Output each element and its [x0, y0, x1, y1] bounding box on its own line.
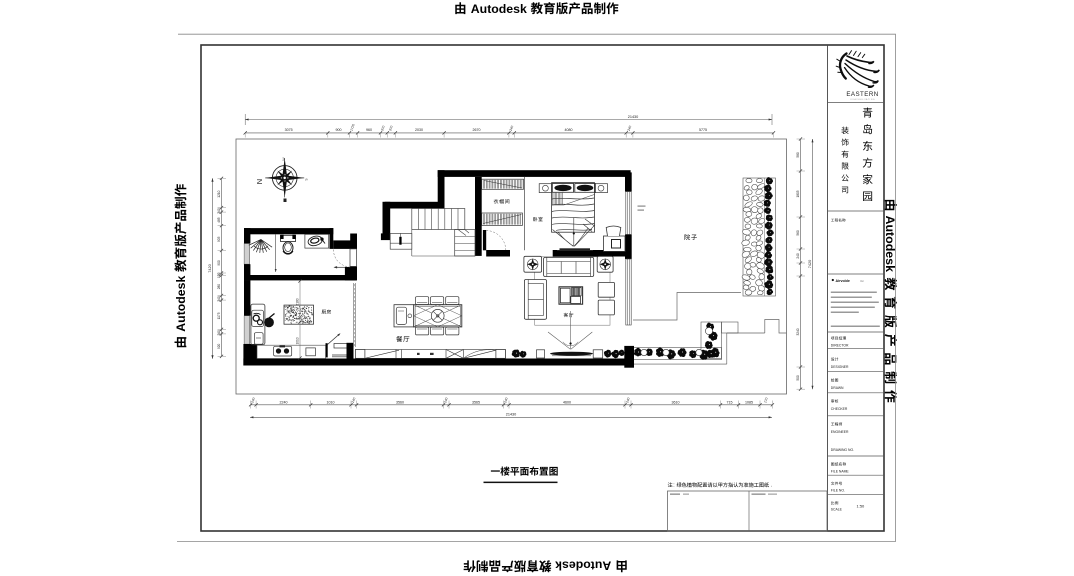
svg-text:21430: 21430: [506, 413, 517, 417]
svg-text:3565: 3565: [472, 400, 480, 404]
svg-text:S: S: [305, 178, 309, 180]
svg-text:FILE NO.: FILE NO.: [831, 488, 845, 492]
svg-text:Ver: Ver: [860, 279, 864, 283]
svg-text:240: 240: [217, 330, 221, 336]
svg-text:120: 120: [217, 272, 221, 278]
svg-text:DIRECTOR: DIRECTOR: [831, 344, 849, 348]
svg-text:DRAWN: DRAWN: [831, 386, 844, 390]
svg-text:Airvolde: Airvolde: [836, 279, 850, 283]
svg-text:240: 240: [796, 253, 800, 259]
svg-text:K U A I S H E J I A T I N G: K U A I S H E J I A T I N G: [850, 98, 874, 101]
svg-text:2670: 2670: [473, 128, 481, 132]
svg-text:21430: 21430: [628, 115, 639, 119]
svg-text:715: 715: [727, 400, 733, 404]
svg-text:EASTERN: EASTERN: [846, 91, 878, 98]
svg-text:240: 240: [217, 296, 221, 302]
svg-text:560: 560: [796, 230, 800, 236]
svg-text:2030: 2030: [415, 128, 423, 132]
svg-text:500: 500: [796, 375, 800, 381]
svg-text:3075: 3075: [285, 128, 293, 132]
svg-text:7420: 7420: [808, 260, 812, 268]
svg-text:7420: 7420: [208, 264, 212, 272]
svg-text:4080: 4080: [565, 128, 573, 132]
svg-text:3560: 3560: [396, 400, 404, 404]
svg-text:900: 900: [336, 128, 342, 132]
svg-text:1010: 1010: [295, 337, 299, 344]
svg-text:DESIGNER: DESIGNER: [831, 365, 849, 369]
svg-text:5775: 5775: [699, 128, 707, 132]
svg-text:920: 920: [217, 343, 221, 349]
svg-text:.: .: [771, 482, 772, 488]
svg-text:1010: 1010: [327, 400, 335, 404]
svg-text::: :: [673, 482, 674, 488]
svg-text:485: 485: [217, 217, 221, 223]
svg-text:4600: 4600: [563, 400, 571, 404]
svg-text:3240: 3240: [796, 328, 800, 335]
svg-text:DRAWING NO.: DRAWING NO.: [831, 448, 854, 452]
svg-text:SCALE: SCALE: [831, 508, 843, 512]
svg-text:280: 280: [217, 284, 221, 290]
svg-text:1210: 1210: [217, 190, 221, 197]
svg-text:2180: 2180: [295, 298, 299, 305]
svg-text:N: N: [255, 179, 264, 184]
svg-text:FILE NAME: FILE NAME: [831, 469, 850, 473]
svg-text:905: 905: [217, 236, 221, 242]
svg-text:CHECKER: CHECKER: [831, 407, 848, 411]
svg-text:240: 240: [217, 208, 221, 214]
svg-text:W: W: [282, 157, 286, 160]
svg-text:ENGINEER: ENGINEER: [831, 430, 849, 434]
svg-text:1175: 1175: [217, 312, 221, 319]
svg-text:2240: 2240: [280, 400, 288, 404]
svg-text:3610: 3610: [672, 400, 680, 404]
svg-text:580: 580: [796, 152, 800, 158]
svg-text:1:50: 1:50: [857, 504, 866, 509]
svg-text:960: 960: [366, 128, 372, 132]
svg-text:1085: 1085: [745, 400, 753, 404]
svg-text:1805: 1805: [796, 190, 800, 197]
svg-text:900: 900: [217, 260, 221, 266]
